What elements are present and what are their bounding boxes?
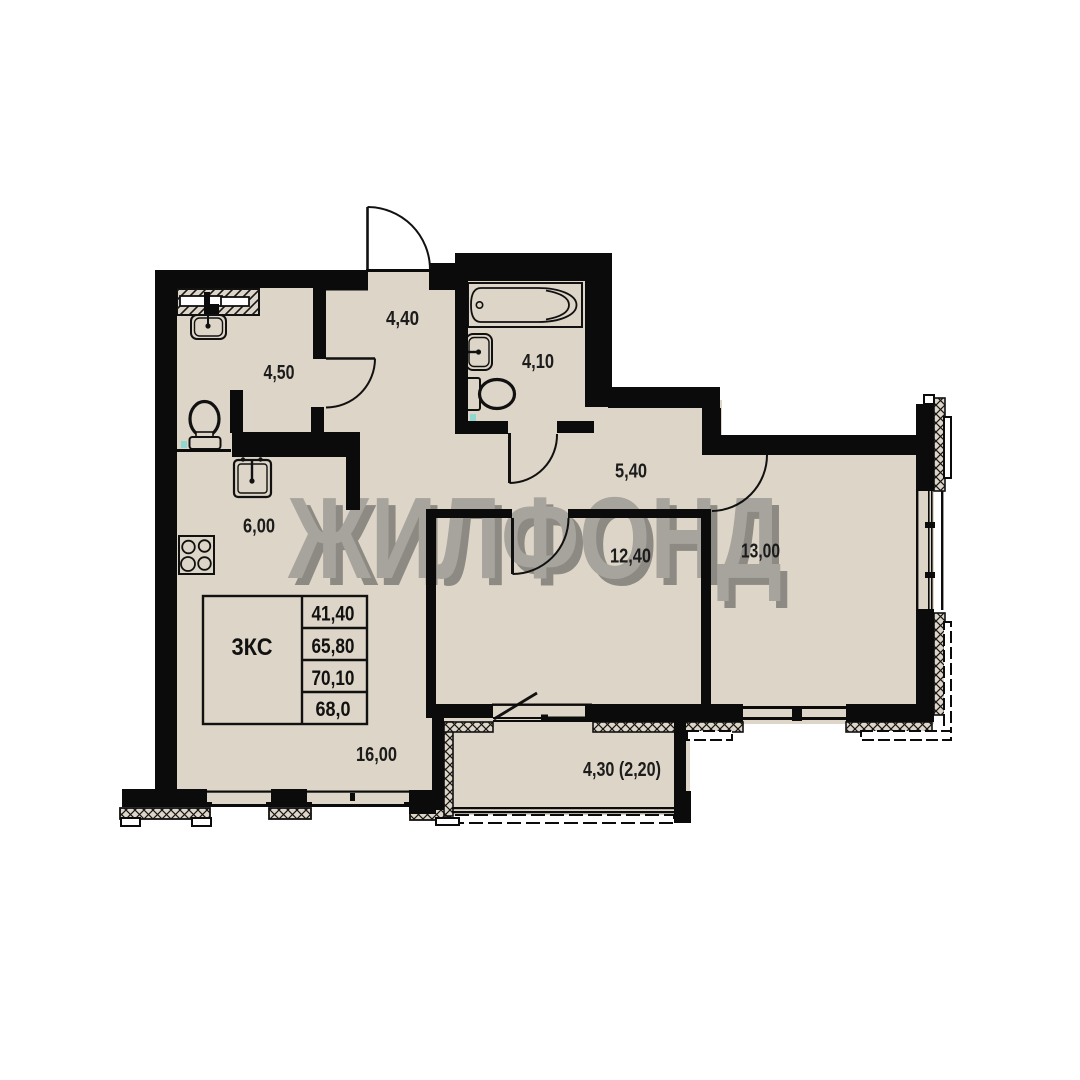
svg-text:68,0: 68,0	[316, 698, 351, 721]
svg-text:13,00: 13,00	[741, 541, 780, 563]
svg-text:70,10: 70,10	[312, 667, 355, 690]
svg-text:4,50: 4,50	[264, 362, 295, 384]
svg-text:65,80: 65,80	[312, 635, 355, 658]
svg-text:41,40: 41,40	[312, 603, 355, 626]
svg-text:6,00: 6,00	[243, 516, 275, 538]
svg-text:12,40: 12,40	[610, 546, 651, 568]
svg-text:16,00: 16,00	[356, 744, 397, 766]
svg-text:5,40: 5,40	[615, 461, 647, 483]
svg-text:3КС: 3КС	[232, 634, 273, 661]
svg-text:4,30 (2,20): 4,30 (2,20)	[583, 759, 661, 781]
svg-text:4,40: 4,40	[386, 308, 419, 330]
svg-text:4,10: 4,10	[522, 351, 554, 373]
